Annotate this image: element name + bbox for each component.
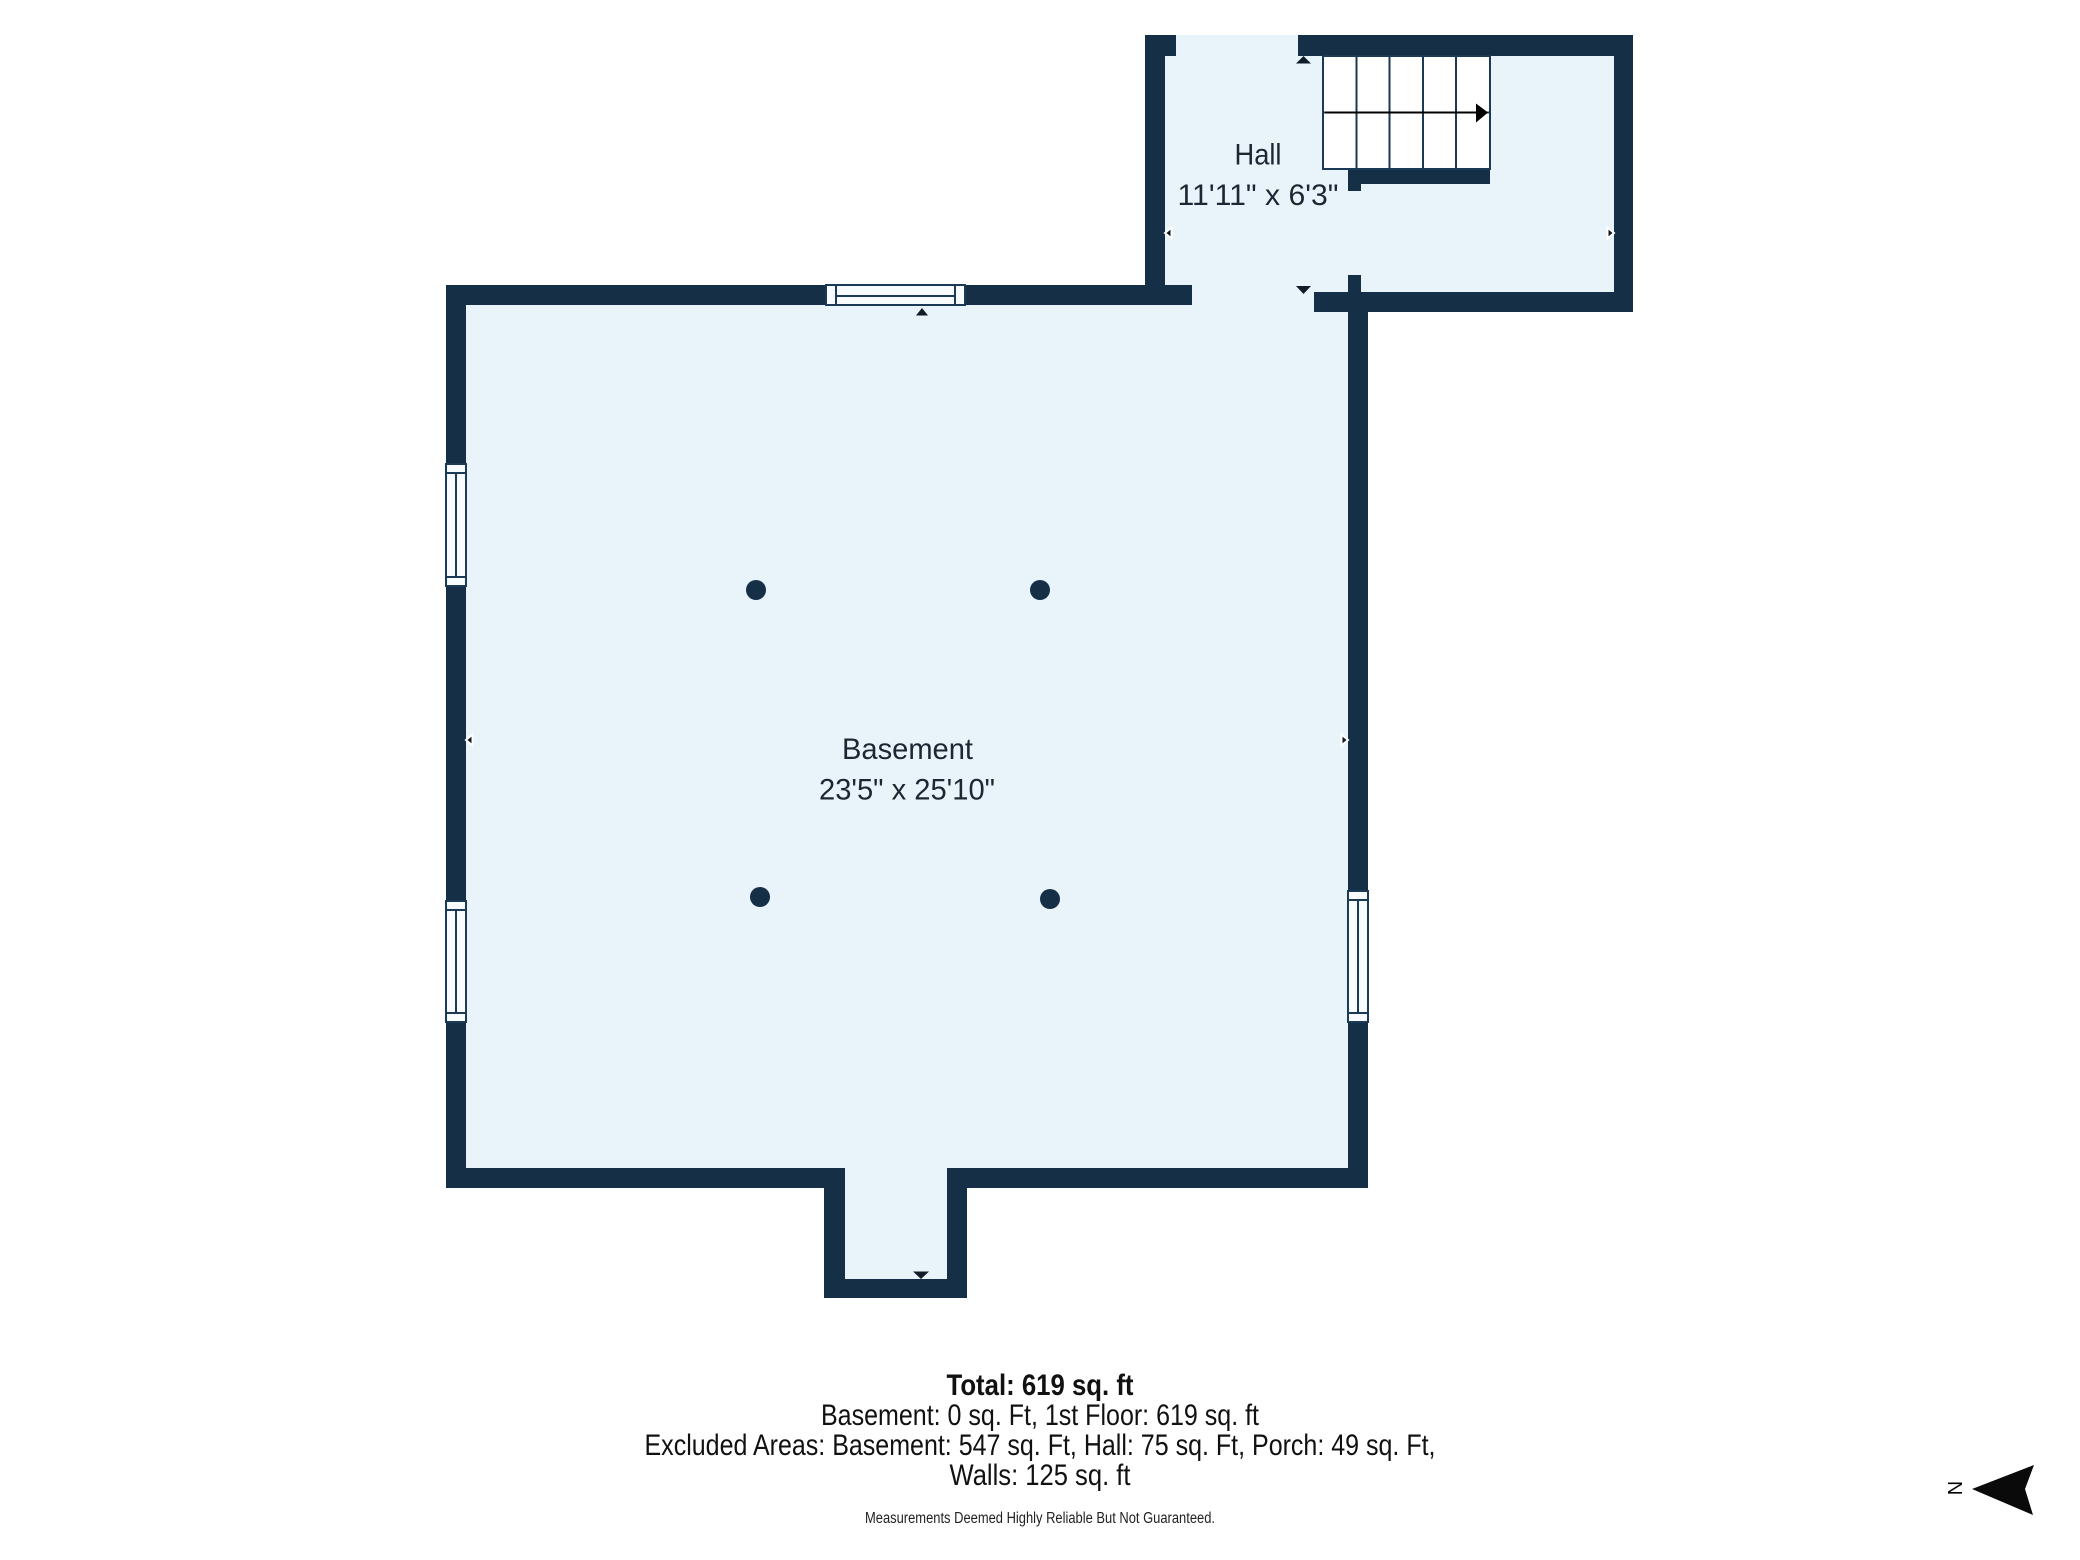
svg-text:N: N bbox=[1945, 1481, 1967, 1495]
svg-text:Excluded Areas: Basement: 547: Excluded Areas: Basement: 547 sq. Ft, Ha… bbox=[645, 1429, 1436, 1462]
svg-text:23'5" x 25'10": 23'5" x 25'10" bbox=[819, 774, 995, 807]
svg-text:Basement: 0 sq. Ft, 1st Floor:: Basement: 0 sq. Ft, 1st Floor: 619 sq. f… bbox=[821, 1399, 1260, 1432]
svg-text:Walls: 125 sq. ft: Walls: 125 sq. ft bbox=[950, 1459, 1132, 1492]
svg-text:Total: 619 sq. ft: Total: 619 sq. ft bbox=[947, 1369, 1134, 1402]
svg-text:Hall: Hall bbox=[1235, 139, 1282, 172]
svg-text:Measurements Deemed Highly Rel: Measurements Deemed Highly Reliable But … bbox=[865, 1510, 1215, 1527]
svg-text:11'11" x 6'3": 11'11" x 6'3" bbox=[1178, 179, 1339, 212]
svg-text:Basement: Basement bbox=[842, 733, 974, 766]
